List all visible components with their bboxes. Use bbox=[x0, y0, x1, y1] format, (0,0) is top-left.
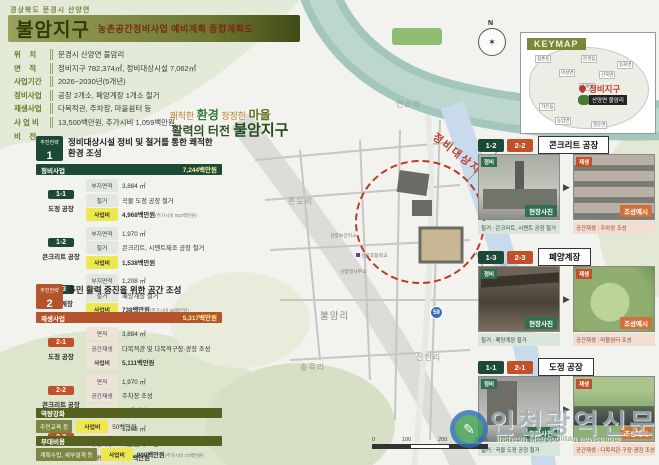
info-row-improvement: 정비사업공장 2개소, 폐양계장 1개소 철거 bbox=[14, 90, 314, 101]
village-label-sinjeonri: 신전리 bbox=[416, 352, 441, 363]
capacity-row: 주민교육 등 사업비 50백만원 bbox=[36, 420, 222, 433]
expense-bar: 부대비용 bbox=[36, 436, 222, 446]
keymap-district-sublabel: 산양면 불암리 bbox=[589, 95, 627, 105]
title-banner: 불암지구 농촌공간정비사업 예비계획 종합계획도 bbox=[8, 15, 300, 42]
table-row: 사업비1,538백만원 bbox=[86, 256, 222, 269]
route-59-badge: 59 bbox=[430, 306, 443, 319]
item-2-1: 2-1도정 공장 면적3,884 ㎡ 공간재생다목적관 및 다목적구장·광장 조… bbox=[36, 327, 222, 371]
caption-poultry-after: 공간재생 : 마을쉼터 조성 bbox=[573, 333, 655, 346]
table-row: 사업비5,111백만원 bbox=[86, 356, 222, 369]
strategy-1-header: 추진전략1 정비대상시설 정비 및 철거를 통한 쾌적한 환경 조성 bbox=[36, 136, 222, 161]
strategy-2-header: 추진전략2 주민 활력 증진을 위한 공간 조성 bbox=[36, 284, 222, 309]
item-1-2: 1-2콘크리트 공장 부지면적1,970 ㎡ 철거콘크리트, 시멘트제조 공장 … bbox=[36, 227, 222, 271]
table-row: 면적1,970 ㎡ bbox=[86, 375, 222, 388]
keymap-district-label: 정비지구 bbox=[589, 83, 620, 95]
village-label-buramri: 불암리 bbox=[320, 308, 349, 322]
keymap-title: KEYMAP bbox=[527, 38, 586, 50]
village-label-yeonsori: 연소리 bbox=[396, 99, 421, 110]
strategy-1-title: 정비대상시설 정비 및 철거를 통한 쾌적한 환경 조성 bbox=[68, 136, 222, 159]
caption-mill-after: 공간재생 : 다목적관·구장·광장 조성 bbox=[573, 443, 655, 456]
caption-poultry-before: 철거 : 폐양계장 철거 bbox=[478, 333, 560, 346]
info-row-location: 위 치문경시 산양면 불암리 bbox=[14, 49, 314, 60]
newspaper-logo-icon: ✎ bbox=[450, 410, 488, 448]
keymap-region: 산북면 bbox=[599, 71, 615, 79]
village-label-songjukri: 송죽리 bbox=[300, 362, 325, 373]
plan-subtitle: 농촌공간정비사업 예비계획 종합계획도 bbox=[98, 22, 253, 35]
regeneration-total-bar: 재생사업5,317백만원 bbox=[36, 312, 222, 323]
poi-elementary-school: 산양초등학교 bbox=[356, 252, 387, 259]
panel-poultry-title: 폐양계장 bbox=[538, 248, 591, 266]
strategy-1-badge: 추진전략1 bbox=[36, 136, 63, 161]
table-row: 공간재생다목적관 및 다목적구장·광장 조성 bbox=[86, 342, 222, 355]
region-caption: 경상북도 문경시 산양면 bbox=[10, 5, 90, 15]
panel-concrete-title: 콘크리트 공장 bbox=[538, 136, 609, 154]
panel-mill-title: 도정 공장 bbox=[538, 358, 594, 376]
keymap-region: 마성면 bbox=[559, 69, 575, 77]
keymap-region: 점촌동 bbox=[535, 55, 551, 63]
caption-concrete-before: 철거 : 콘크리트, 시멘트 공장 철거 bbox=[478, 221, 560, 234]
watermark-english: Incheon Metropolitan newspaper bbox=[496, 434, 621, 443]
poi-health-center: 산양보건지소 bbox=[330, 232, 356, 239]
school-marker-icon bbox=[356, 253, 360, 257]
info-row-area: 면 적정비지구 782,374㎡, 정비대상시설 7,062㎡ bbox=[14, 63, 314, 74]
photo-concrete-before: 정비 현장사진 bbox=[478, 154, 560, 220]
capacity-block: 역량강화 주민교육 등 사업비 50백만원 bbox=[36, 408, 222, 433]
plan-poster: 연소리 존도리 불암리 송죽리 신전리 정비대상지 산양초등학교 산양면사무소 … bbox=[0, 0, 659, 465]
caption-mill-before: 철거 : 곡물 도정 공장 철거 bbox=[478, 443, 560, 456]
district-title: 불암지구 bbox=[16, 15, 90, 42]
arrow-icon: ▶ bbox=[563, 182, 570, 193]
panel-poultry-header: 1-3 2-3 폐양계장 bbox=[478, 248, 591, 266]
arrow-icon: ▶ bbox=[563, 294, 570, 305]
photo-concrete-after: 재생 조성예시 bbox=[573, 154, 655, 220]
table-row: 사업비4,968백만원(추가시비 932백만원) bbox=[86, 208, 222, 221]
keymap-region: 가은읍 bbox=[539, 103, 555, 111]
keymap-region: 영순면 bbox=[591, 121, 607, 129]
strategy-2-title: 주민 활력 증진을 위한 공간 조성 bbox=[68, 284, 181, 296]
table-row: 부지면적3,884 ㎡ bbox=[86, 179, 222, 192]
compass-icon: N✶ bbox=[478, 28, 506, 56]
photo-poultry-after: 재생 조성예시 bbox=[573, 266, 655, 332]
item-1-1: 1-1도정 공장 부지면적3,884 ㎡ 철거곡물 도정 공장 철거 사업비4,… bbox=[36, 179, 222, 223]
table-row: 면적3,884 ㎡ bbox=[86, 327, 222, 340]
expense-block: 부대비용 계획수립, 세부설계 등 사업비 900백만원(추가시비 72백만원) bbox=[36, 436, 222, 461]
table-row: 부지면적1,970 ㎡ bbox=[86, 227, 222, 240]
keymap-region: 농암면 bbox=[555, 117, 571, 125]
poi-township-office: 산양면사무소 bbox=[340, 268, 366, 275]
expense-row: 계획수립, 세부설계 등 사업비 900백만원(추가시비 72백만원) bbox=[36, 448, 222, 461]
table-row: 철거콘크리트, 시멘트제조 공장 철거 bbox=[86, 241, 222, 254]
photo-poultry-before: 정비 현장사진 bbox=[478, 266, 560, 332]
keymap-panel: KEYMAP 문경읍 동로면 산북면 마성면 호계면 영순면 가은읍 농암면 점… bbox=[520, 32, 656, 134]
strategy-2-badge: 추진전략2 bbox=[36, 284, 63, 309]
panel-mill-header: 1-1 2-1 도정 공장 bbox=[478, 358, 594, 376]
caption-concrete-after: 공간재생 : 주차장 조성 bbox=[573, 221, 655, 234]
table-row: 철거곡물 도정 공장 철거 bbox=[86, 194, 222, 207]
keymap-region: 동로면 bbox=[617, 61, 633, 69]
table-row: 공간재생주차장 조성 bbox=[86, 389, 222, 402]
panel-concrete-header: 1-2 2-2 콘크리트 공장 bbox=[478, 136, 609, 154]
info-row-period: 사업기간2026~2030년(5개년) bbox=[14, 76, 314, 87]
keymap-region: 문경읍 bbox=[581, 55, 597, 63]
capacity-bar: 역량강화 bbox=[36, 408, 222, 418]
village-label-jondori: 존도리 bbox=[288, 196, 313, 207]
improvement-total-bar: 정비사업7,244백만원 bbox=[36, 164, 222, 175]
